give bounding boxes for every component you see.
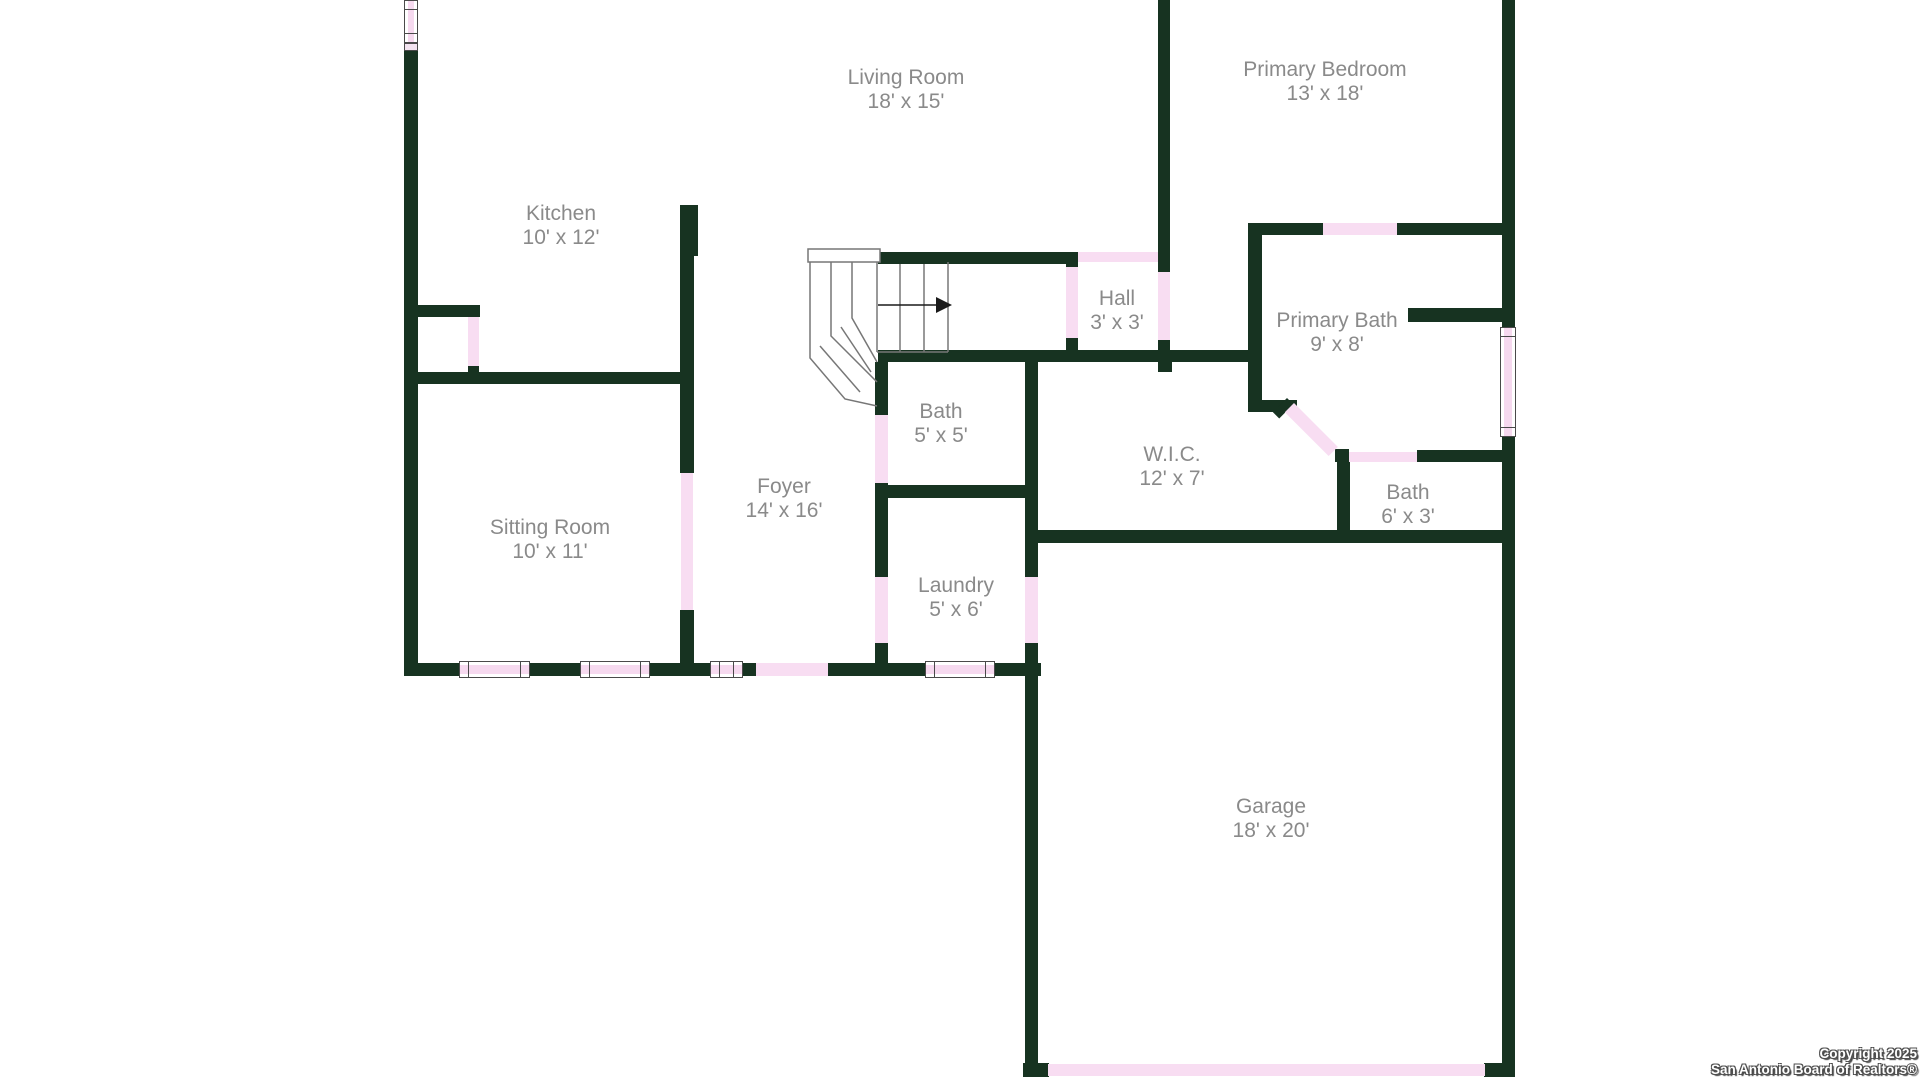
- room-label-bath-guest: Bath6' x 3': [1381, 481, 1435, 529]
- wall: [1066, 252, 1078, 267]
- hall-right-door: [1158, 272, 1170, 340]
- sitting-window-2: [580, 661, 650, 678]
- sitting-window-1-mullion: [468, 662, 469, 677]
- wall: [1397, 223, 1502, 235]
- sitting-window-1: [459, 661, 530, 678]
- room-name: Primary Bath: [1276, 309, 1397, 333]
- stair-tread-line: [841, 327, 871, 372]
- wall: [878, 350, 1252, 362]
- wall: [743, 663, 757, 676]
- stair-tread-line: [831, 262, 877, 382]
- primary-bath-window-mullion: [1501, 427, 1515, 428]
- laundry-window-pane: [926, 665, 994, 674]
- wall: [875, 485, 1037, 498]
- wall: [680, 205, 694, 473]
- hall-left-door: [1066, 267, 1078, 338]
- room-dimensions: 6' x 3': [1381, 505, 1435, 529]
- room-dimensions: 12' x 7': [1139, 467, 1204, 491]
- stairs-direction-arrow-head: [936, 297, 952, 313]
- wall: [1158, 0, 1170, 272]
- primary-bath-window-pane: [1504, 328, 1512, 436]
- wall: [875, 362, 888, 416]
- room-label-living-room: Living Room18' x 15': [848, 66, 965, 114]
- sitting-window-2-mullion: [589, 662, 590, 677]
- room-name: Kitchen: [523, 202, 600, 226]
- foyer-window-pane: [711, 665, 742, 674]
- laundry-window-mullion: [985, 662, 986, 677]
- foyer-window-mullion: [719, 662, 720, 677]
- room-name: Bath: [914, 400, 968, 424]
- stair-tread-line: [810, 262, 877, 406]
- laundry-garage-door: [1025, 577, 1038, 643]
- room-dimensions: 9' x 8': [1276, 333, 1397, 357]
- room-dimensions: 18' x 20': [1233, 819, 1310, 843]
- wall: [404, 50, 418, 676]
- room-name: W.I.C.: [1139, 443, 1204, 467]
- stair-tread-line: [852, 262, 877, 362]
- kitchen-window-mullion: [405, 33, 417, 34]
- sitting-window-1-pane: [460, 665, 529, 674]
- copyright-line-2: San Antonio Board of Realtors®: [1711, 1062, 1917, 1078]
- wall: [530, 663, 581, 676]
- kitchen-window-sill: [404, 43, 418, 51]
- laundry-foyer-door: [875, 577, 888, 643]
- kitchen-window-mullion: [405, 9, 417, 10]
- copyright-line-1: Copyright 2025: [1711, 1046, 1917, 1062]
- room-name: Hall: [1090, 287, 1144, 311]
- laundry-window: [925, 661, 995, 678]
- room-name: Garage: [1233, 795, 1310, 819]
- garage-overhead-door: [1048, 1064, 1485, 1076]
- room-dimensions: 5' x 6': [918, 598, 994, 622]
- copyright: Copyright 2025 San Antonio Board of Real…: [1711, 1046, 1917, 1078]
- staircase: [0, 0, 1920, 1080]
- kitchen-window: [404, 0, 418, 43]
- room-name: Primary Bedroom: [1243, 58, 1406, 82]
- room-label-sitting-room: Sitting Room10' x 11': [490, 516, 610, 564]
- primary-bedroom-door: [1323, 223, 1397, 235]
- room-label-foyer: Foyer14' x 16': [746, 475, 823, 523]
- guest-bath-door: [1349, 452, 1417, 462]
- wall: [680, 610, 694, 676]
- primary-bath-window-mullion: [1501, 336, 1515, 337]
- front-entry-door: [756, 663, 828, 676]
- wall: [1250, 223, 1324, 235]
- bath-door: [875, 415, 888, 483]
- wall: [878, 252, 1066, 264]
- wall: [1025, 530, 1515, 543]
- wall: [1408, 308, 1502, 322]
- primary-bath-window: [1500, 327, 1516, 437]
- room-dimensions: 14' x 16': [746, 499, 823, 523]
- wall: [1248, 223, 1262, 412]
- room-dimensions: 5' x 5': [914, 424, 968, 448]
- room-label-laundry: Laundry5' x 6': [918, 574, 994, 622]
- room-dimensions: 10' x 12': [523, 226, 600, 250]
- room-label-primary-bedroom: Primary Bedroom13' x 18': [1243, 58, 1406, 106]
- wall: [1417, 450, 1502, 462]
- wall: [1337, 455, 1350, 531]
- room-dimensions: 3' x 3': [1090, 311, 1144, 335]
- sitting-window-2-mullion: [640, 662, 641, 677]
- room-name: Laundry: [918, 574, 994, 598]
- wall: [1158, 362, 1172, 372]
- room-label-garage: Garage18' x 20': [1233, 795, 1310, 843]
- wall: [468, 366, 479, 374]
- room-dimensions: 13' x 18': [1243, 82, 1406, 106]
- pantry-door: [468, 317, 479, 366]
- wall: [1502, 0, 1515, 328]
- room-dimensions: 18' x 15': [848, 90, 965, 114]
- floor-plan: Living Room18' x 15'Primary Bedroom13' x…: [0, 0, 1920, 1080]
- room-name: Foyer: [746, 475, 823, 499]
- wall: [1025, 643, 1038, 1077]
- foyer-window: [710, 661, 743, 678]
- wall: [875, 643, 888, 676]
- sitting-room-door: [681, 473, 693, 610]
- sitting-window-2-pane: [581, 665, 649, 674]
- kitchen-window-pane: [408, 1, 414, 42]
- stair-tread-line: [820, 346, 860, 392]
- room-label-wic: W.I.C.12' x 7': [1139, 443, 1204, 491]
- hall-top-door: [1078, 252, 1158, 262]
- room-label-hall: Hall3' x 3': [1090, 287, 1144, 335]
- wall: [1025, 362, 1038, 578]
- room-dimensions: 10' x 11': [490, 540, 610, 564]
- room-name: Sitting Room: [490, 516, 610, 540]
- room-label-bath-small: Bath5' x 5': [914, 400, 968, 448]
- room-label-primary-bath: Primary Bath9' x 8': [1276, 309, 1397, 357]
- laundry-window-mullion: [934, 662, 935, 677]
- room-label-kitchen: Kitchen10' x 12': [523, 202, 600, 250]
- stair-landing-header: [808, 249, 880, 262]
- foyer-window-mullion: [733, 662, 734, 677]
- wall: [404, 305, 480, 317]
- room-name: Living Room: [848, 66, 965, 90]
- wall: [404, 663, 460, 676]
- primary-bath-diagonal-door: [1285, 403, 1338, 456]
- room-name: Bath: [1381, 481, 1435, 505]
- wall: [404, 372, 694, 384]
- sitting-window-1-mullion: [520, 662, 521, 677]
